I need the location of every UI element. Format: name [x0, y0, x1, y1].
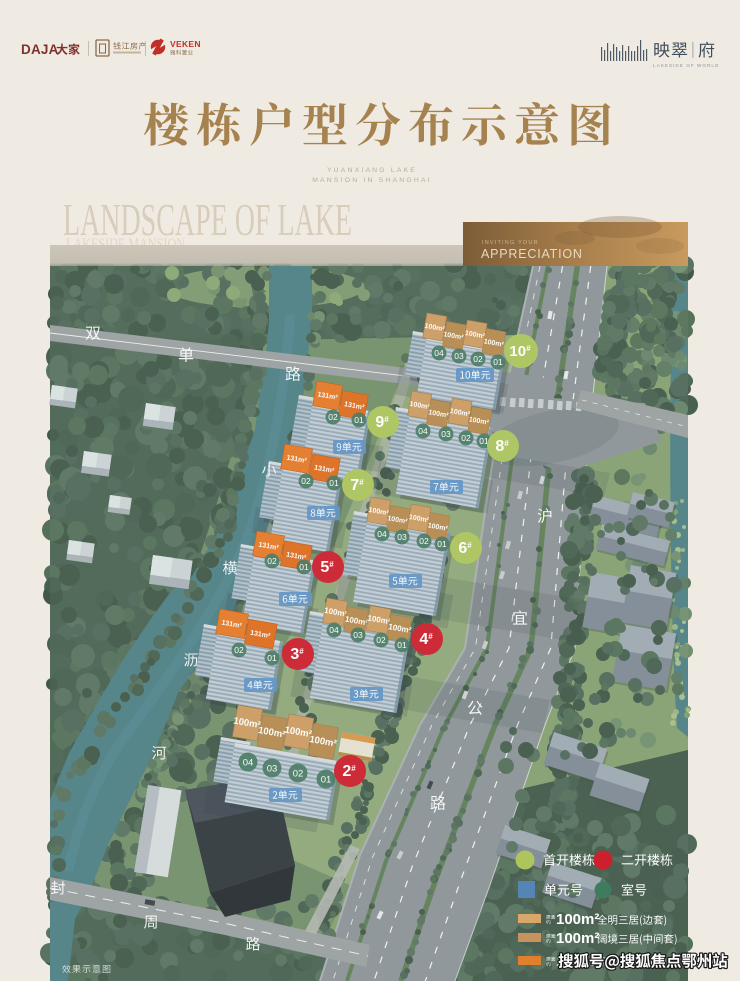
- svg-text:APPRECIATION: APPRECIATION: [481, 247, 583, 261]
- svg-text:YUANXIANG LAKE: YUANXIANG LAKE: [327, 167, 417, 174]
- svg-text:100m²: 100m²: [556, 930, 599, 947]
- svg-text:MANSION IN SHANGHAI: MANSION IN SHANGHAI: [312, 177, 432, 184]
- svg-text:LAKESIDE OF WORLD: LAKESIDE OF WORLD: [653, 63, 719, 68]
- svg-text:100m²: 100m²: [556, 911, 599, 928]
- svg-text:DAJA: DAJA: [21, 42, 59, 57]
- svg-text:VEKEN: VEKEN: [170, 39, 201, 49]
- svg-text:INVITING YOUR: INVITING YOUR: [482, 240, 539, 246]
